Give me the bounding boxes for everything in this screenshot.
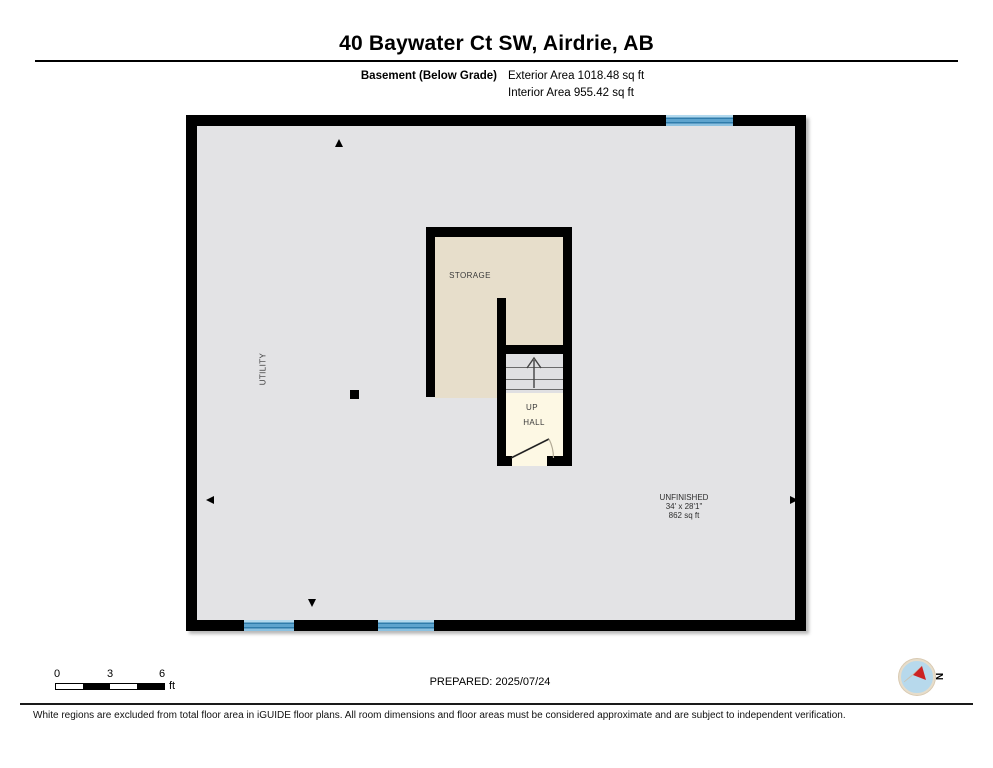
scale-bar bbox=[55, 683, 165, 690]
unfinished-room-label: UNFINISHED 34' x 28'1" 862 sq ft bbox=[660, 493, 709, 520]
floorplan-page: 40 Baywater Ct SW, Airdrie, AB Basement … bbox=[0, 0, 993, 768]
measure-arrow-right-icon bbox=[790, 496, 798, 504]
scale-tick-6: 6 bbox=[159, 668, 165, 680]
unfinished-room-dimensions: 34' x 28'1" bbox=[660, 502, 709, 511]
scale-tick-0: 0 bbox=[54, 668, 60, 680]
door-swing-icon bbox=[511, 439, 554, 458]
hall-room-label: HALL bbox=[523, 418, 545, 427]
scale-unit-label: ft bbox=[169, 680, 175, 692]
window-top bbox=[666, 115, 733, 126]
measure-arrow-left-icon bbox=[206, 496, 214, 504]
interior-area-label: Interior Area 955.42 sq ft bbox=[508, 87, 634, 99]
floor-name-label: Basement (Below Grade) bbox=[361, 70, 497, 82]
window-bottom-center bbox=[378, 620, 434, 631]
compass-north-label: N bbox=[933, 673, 944, 680]
north-compass-icon bbox=[899, 659, 935, 695]
measure-arrow-down-icon bbox=[308, 599, 316, 607]
compass-needle-icon bbox=[901, 661, 929, 689]
unfinished-room-name: UNFINISHED bbox=[660, 493, 709, 502]
scale-tick-3: 3 bbox=[107, 668, 113, 680]
stairs-up-label: UP bbox=[526, 403, 538, 412]
unfinished-room-area: 862 sq ft bbox=[660, 511, 709, 520]
floorplan-canvas: STORAGE UTILITY UP HALL UNFINISHED 34' x… bbox=[186, 115, 806, 631]
prepared-date-label: PREPARED: 2025/07/24 bbox=[340, 676, 640, 688]
plan-annotations-layer bbox=[197, 126, 795, 620]
utility-room-label: UTILITY bbox=[259, 353, 268, 386]
window-bottom-left bbox=[244, 620, 294, 631]
disclaimer-text: White regions are excluded from total fl… bbox=[33, 710, 973, 721]
header-divider bbox=[35, 60, 958, 62]
page-title: 40 Baywater Ct SW, Airdrie, AB bbox=[0, 32, 993, 56]
exterior-area-label: Exterior Area 1018.48 sq ft bbox=[508, 70, 644, 82]
footer-divider bbox=[20, 703, 973, 705]
stair-up-arrow-icon bbox=[527, 358, 541, 388]
storage-room-label: STORAGE bbox=[449, 271, 491, 280]
measure-arrow-up-icon bbox=[335, 139, 343, 147]
